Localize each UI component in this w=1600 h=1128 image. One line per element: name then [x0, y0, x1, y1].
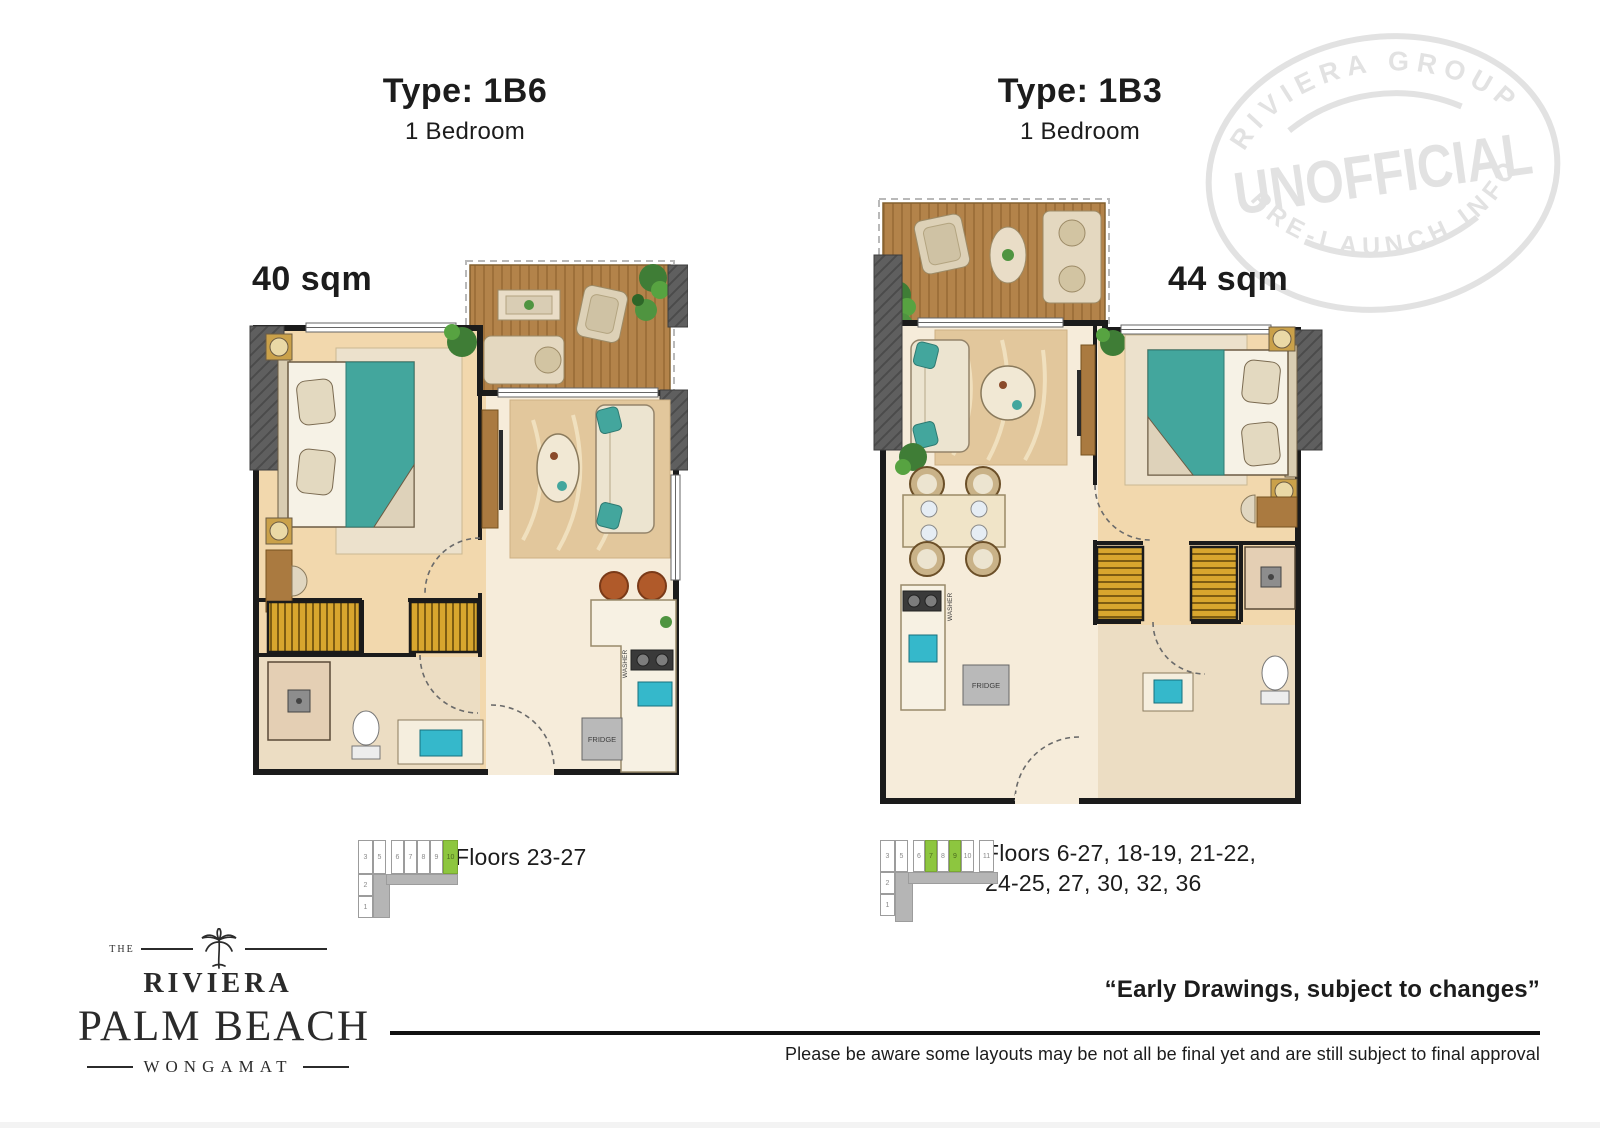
early-drawings-quote: “Early Drawings, subject to changes” — [840, 976, 1540, 1004]
keyplan-unit: 6 — [391, 840, 404, 874]
logo-dash — [303, 1066, 349, 1068]
plan-1b6-title: Type: 1B6 1 Bedroom — [265, 72, 665, 146]
keyplan-corridor — [908, 872, 998, 884]
keyplan-unit: 3 — [358, 840, 373, 874]
entrance-gap — [488, 765, 554, 775]
palm-emblem-icon — [199, 928, 239, 970]
washer-label: WASHER — [947, 593, 954, 622]
plan-1b3-area: 44 sqm — [1168, 260, 1288, 299]
entrance-gap — [1015, 794, 1079, 804]
footer-disclaimer: Please be aware some layouts may be not … — [640, 1044, 1540, 1065]
brochure-page: RIVIERA GROUP UNOFFICIAL PRE-LAUNCH INFO… — [0, 0, 1600, 1128]
plan-1b6-area: 40 sqm — [252, 260, 372, 299]
plan-1b3-bedrooms: 1 Bedroom — [880, 118, 1280, 146]
footer-divider — [390, 1031, 1540, 1035]
washer-label: WASHER — [622, 650, 629, 679]
living-room-1b6 — [482, 400, 670, 558]
balcony-1b6 — [466, 261, 688, 397]
keyplan-unit: 6 — [913, 840, 925, 872]
keyplan-unit: 1 — [358, 896, 373, 918]
logo-rule — [245, 948, 327, 950]
fridge-label: FRIDGE — [972, 681, 1000, 690]
floor-plan-1b6: FRIDGE WASHER — [248, 250, 688, 795]
logo-palm-beach: PALM BEACH — [78, 1002, 358, 1051]
keyplan-unit: 10 — [961, 840, 974, 872]
keyplan-unit: 5 — [373, 840, 386, 874]
logo-the: THE — [109, 944, 134, 955]
logo-riviera: RIVIERA — [78, 968, 358, 1000]
plan-1b3-title: Type: 1B3 1 Bedroom — [880, 72, 1280, 146]
plan-1b6-bedrooms: 1 Bedroom — [265, 118, 665, 146]
keyplan-unit: 2 — [880, 872, 895, 894]
keyplan-unit: 8 — [417, 840, 430, 874]
floors-label-1b6: Floors 23-27 — [455, 842, 587, 872]
keyplan-unit: 1 — [880, 894, 895, 916]
keyplan-unit: 5 — [895, 840, 908, 872]
keyplan-unit: 8 — [937, 840, 949, 872]
logo-rule — [141, 948, 193, 950]
plan-1b6-type: Type: 1B6 — [265, 72, 665, 111]
keyplan-unit: 3 — [880, 840, 895, 872]
exterior-wall-panel — [874, 255, 902, 450]
keyplan-unit-highlighted: 10 — [443, 840, 458, 874]
balcony-1b3 — [879, 199, 1109, 337]
keyplan-unit-highlighted: 9 — [949, 840, 961, 872]
keyplan-unit: 2 — [358, 874, 373, 896]
logo-wongamat: WONGAMAT — [143, 1057, 292, 1077]
floors-label-1b3: Floors 6-27, 18-19, 21-22, 24-25, 27, 30… — [985, 838, 1287, 899]
exterior-wall-panel — [1294, 330, 1322, 450]
keyplan-unit: 9 — [430, 840, 443, 874]
page-bottom-strip — [0, 1122, 1600, 1128]
keyplan-unit-highlighted: 7 — [925, 840, 937, 872]
keyplan-corridor — [386, 874, 458, 885]
plan-1b3-type: Type: 1B3 — [880, 72, 1280, 111]
keyplan-1b3: 3 5 6 7 8 9 10 11 2 1 — [880, 840, 998, 922]
brand-logo: THE RIVIERA PALM BEACH WONGAMAT — [78, 928, 358, 1077]
keyplan-1b6: 3 5 6 7 8 9 10 2 1 — [358, 840, 458, 918]
keyplan-unit: 11 — [979, 840, 994, 872]
logo-dash — [87, 1066, 133, 1068]
bath-floor-1b3 — [1098, 625, 1295, 798]
keyplan-unit: 7 — [404, 840, 417, 874]
fridge-label: FRIDGE — [588, 735, 616, 744]
